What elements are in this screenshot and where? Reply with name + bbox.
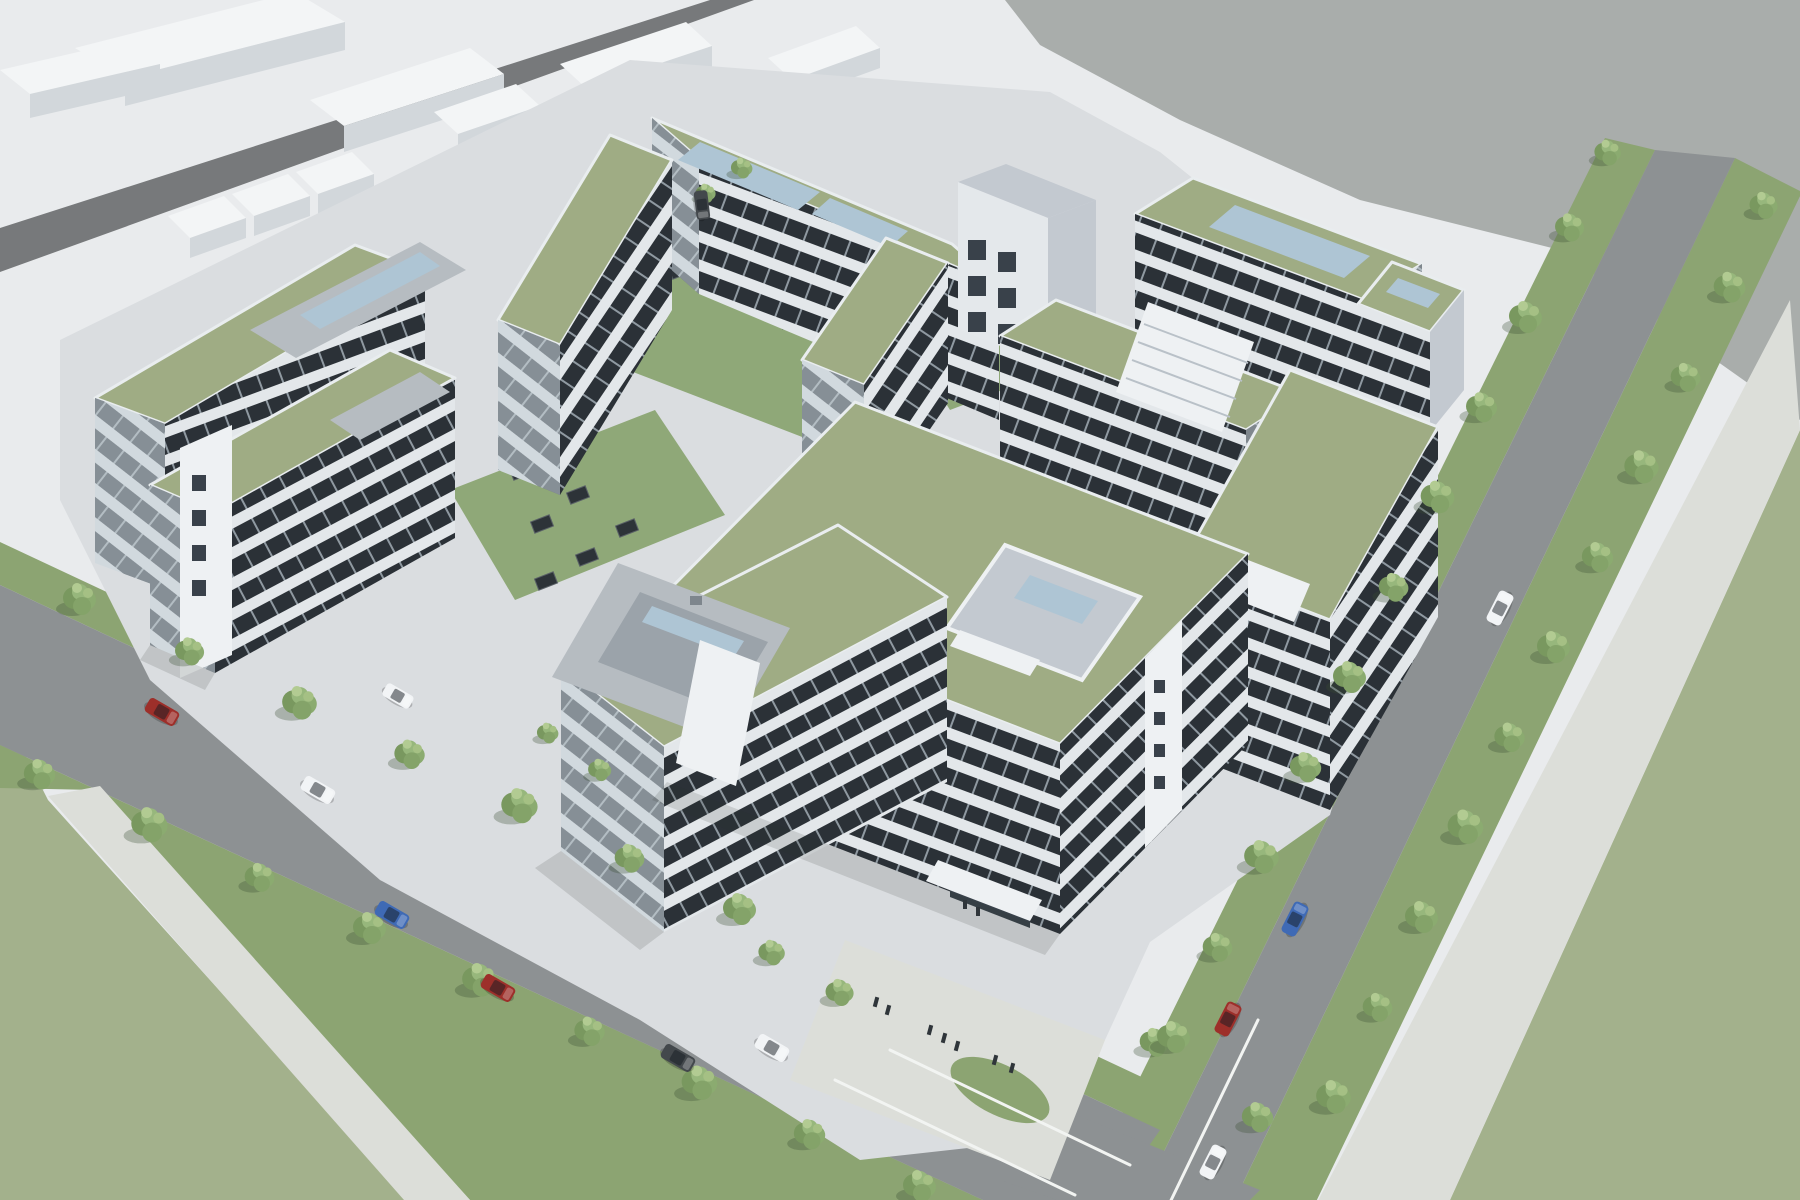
penthouse-vent xyxy=(690,596,702,605)
rendering-canvas xyxy=(0,0,1800,1200)
stair-window xyxy=(1154,680,1165,693)
stair-window xyxy=(1154,712,1165,725)
stair-window xyxy=(1154,776,1165,789)
tower-window xyxy=(968,240,986,260)
stair-window xyxy=(1154,744,1165,757)
stair-window xyxy=(192,510,206,526)
pedestrian xyxy=(963,900,967,909)
tower-window xyxy=(968,312,986,332)
tower-window xyxy=(998,288,1016,308)
stair-window xyxy=(192,475,206,491)
pedestrian xyxy=(976,907,980,916)
tower-window xyxy=(968,276,986,296)
architectural-rendering xyxy=(0,0,1800,1200)
stair-strip xyxy=(1145,620,1182,848)
tower-window xyxy=(998,252,1016,272)
stair-window xyxy=(192,580,206,596)
stair-window xyxy=(192,545,206,561)
facade-shading xyxy=(498,320,560,495)
